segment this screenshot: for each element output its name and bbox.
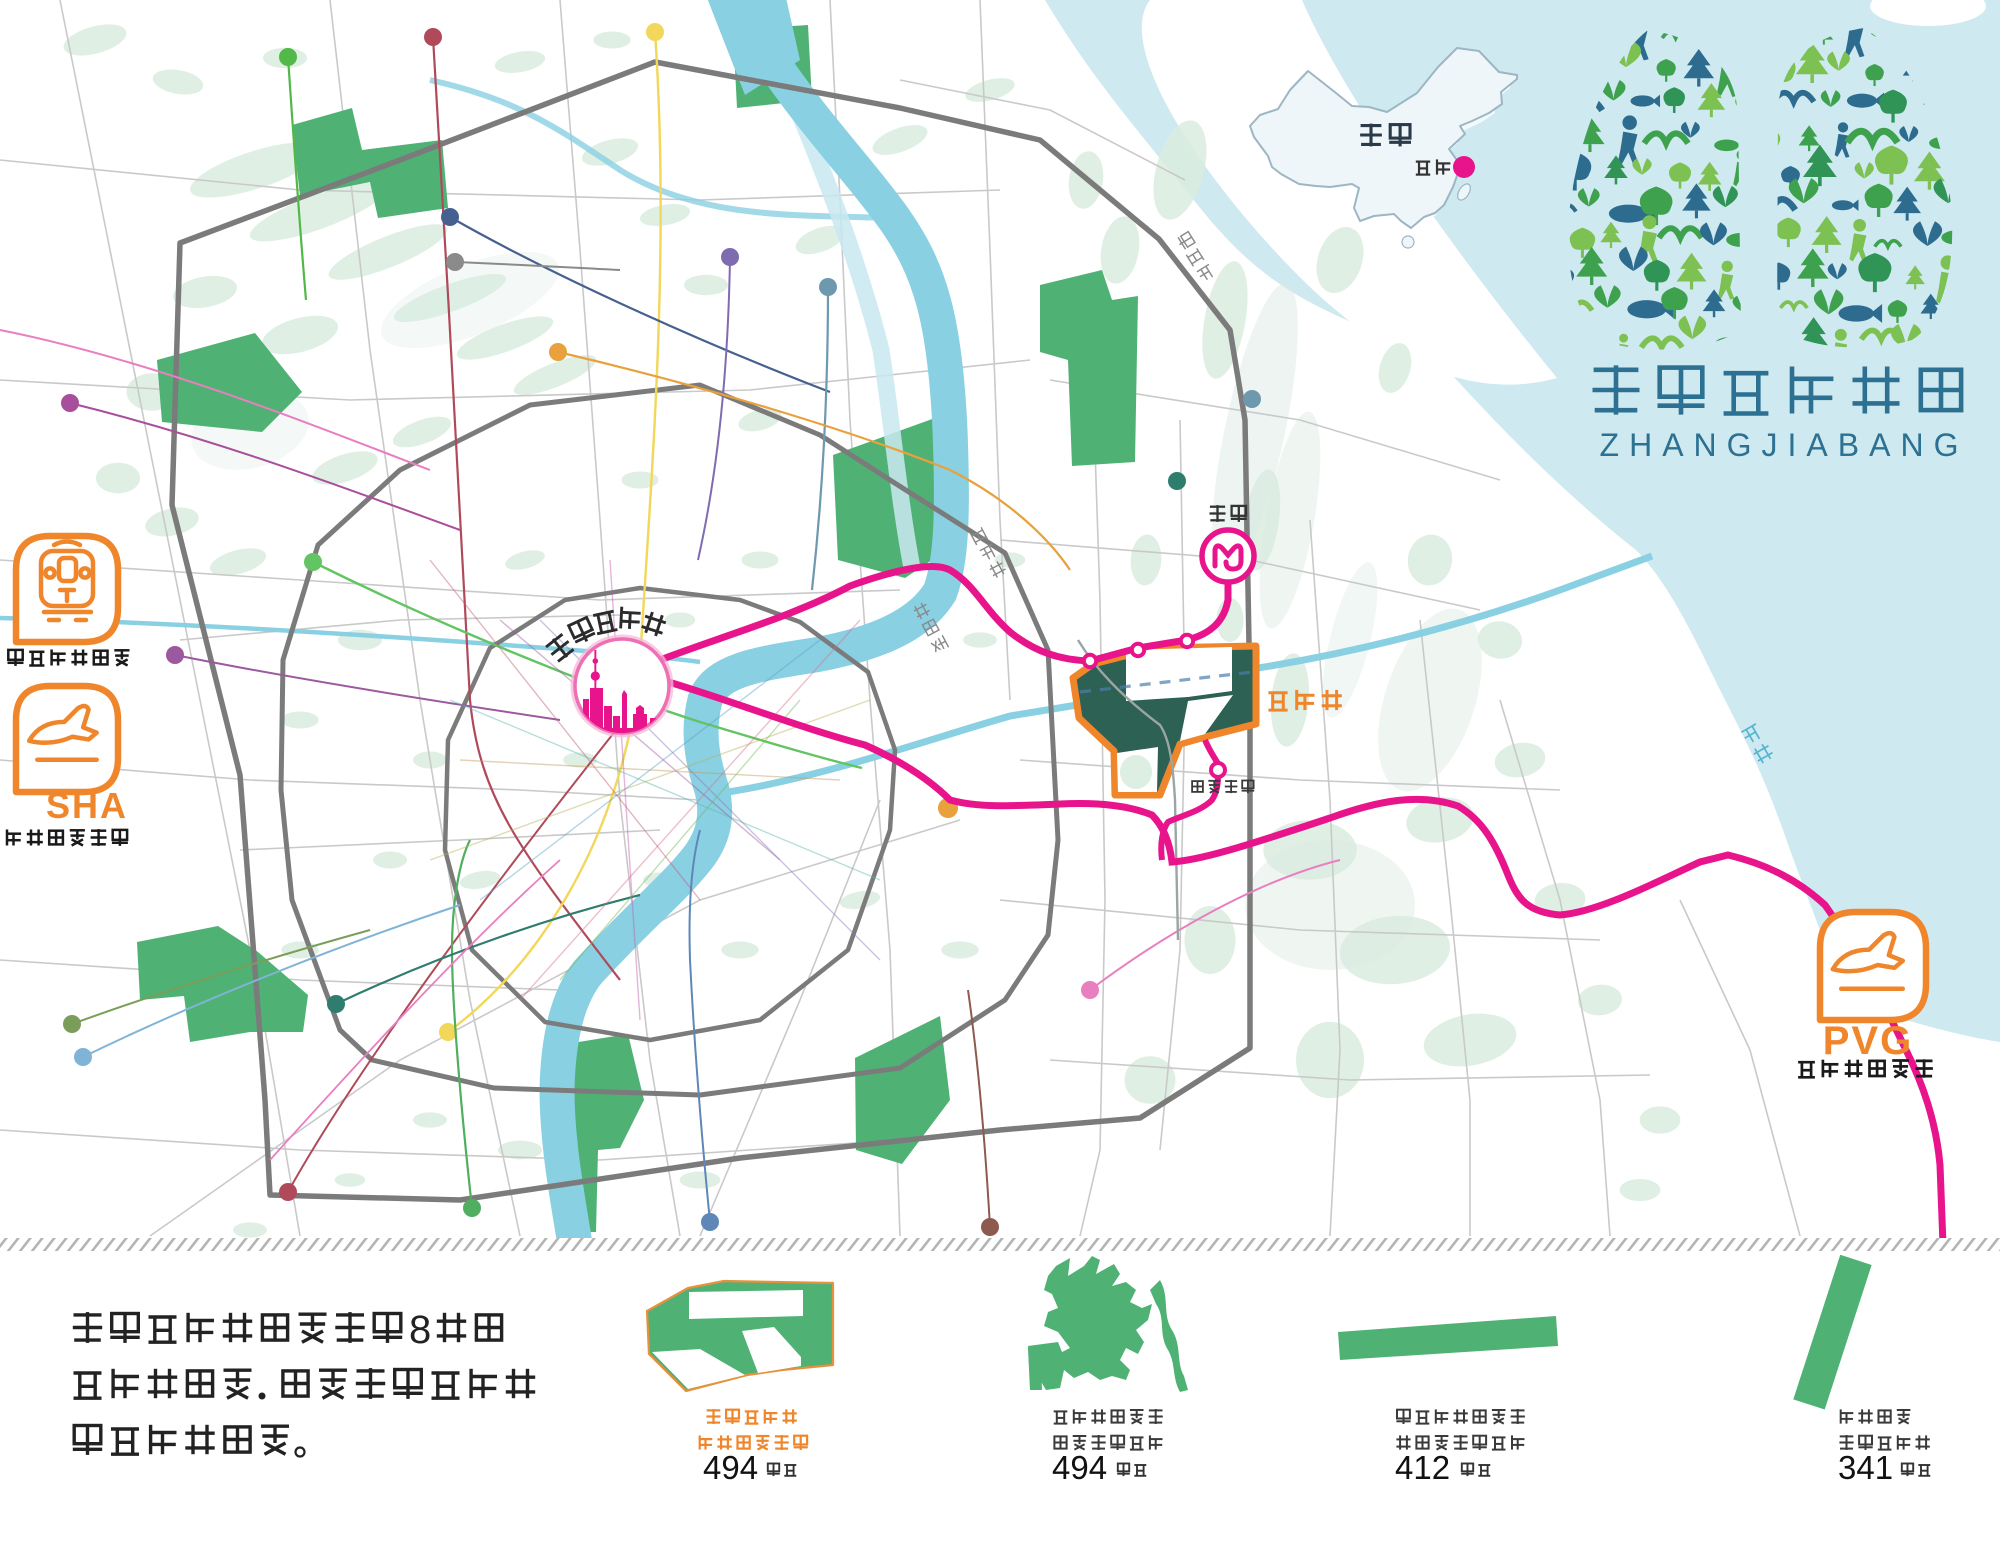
svg-text:412: 412: [1395, 1449, 1450, 1486]
svg-text:494: 494: [1052, 1449, 1107, 1486]
svg-text:SHA: SHA: [46, 785, 128, 826]
svg-text:341: 341: [1838, 1449, 1893, 1486]
svg-text:PVG: PVG: [1823, 1019, 1913, 1063]
svg-text:ZHANGJIABANG: ZHANGJIABANG: [1600, 427, 1969, 463]
svg-text:494: 494: [703, 1449, 758, 1486]
svg-text:8: 8: [409, 1308, 431, 1352]
